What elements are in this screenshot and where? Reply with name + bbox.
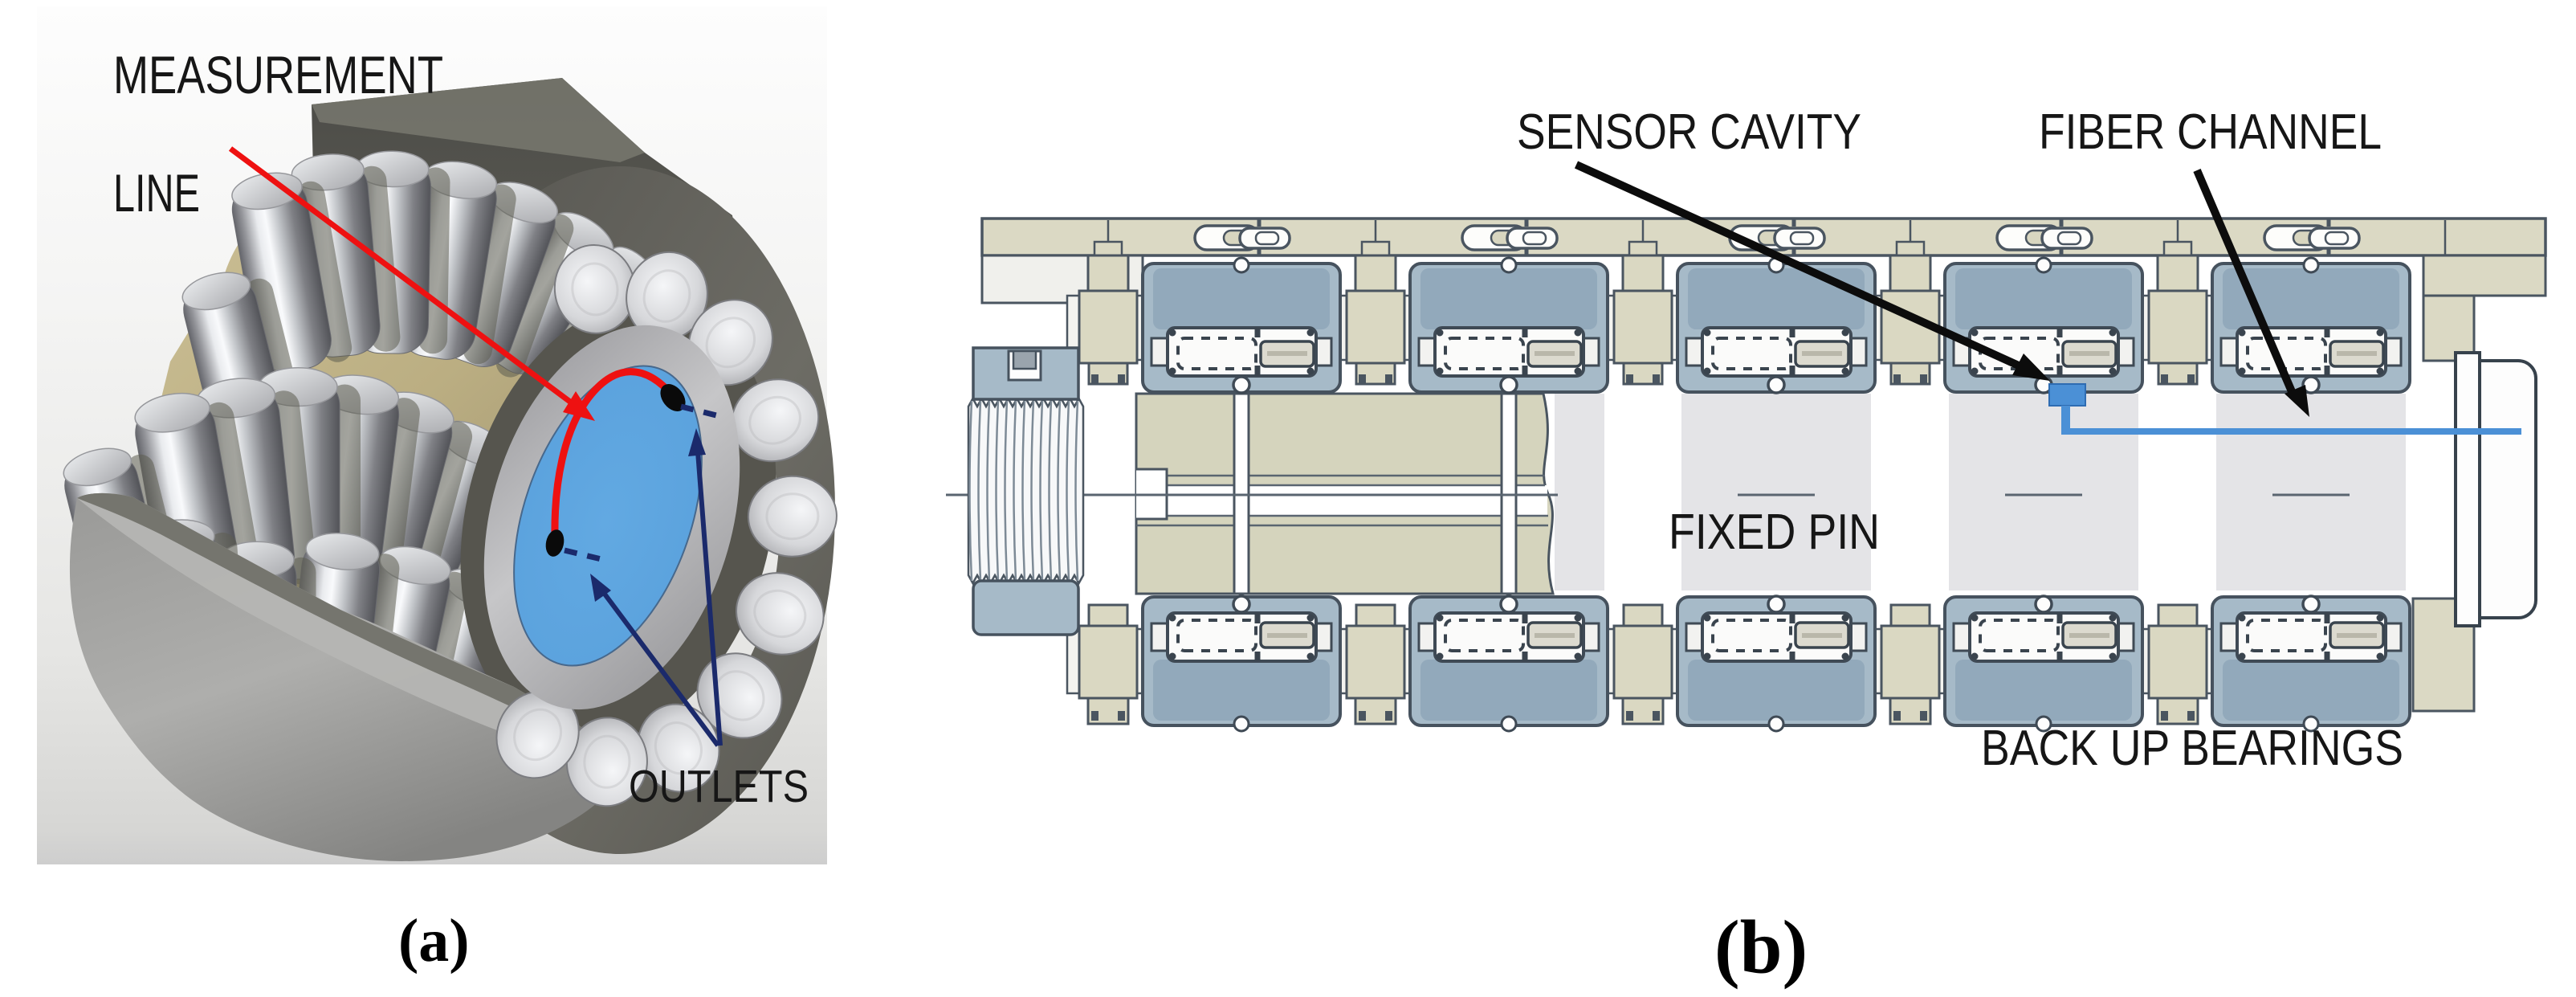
svg-text:FIXED PIN: FIXED PIN xyxy=(1669,505,1880,560)
svg-text:MEASUREMENT: MEASUREMENT xyxy=(113,45,443,104)
svg-text:OUTLETS: OUTLETS xyxy=(629,761,809,812)
svg-text:(a): (a) xyxy=(398,907,470,975)
svg-text:LINE: LINE xyxy=(113,163,200,223)
svg-text:FIBER CHANNEL: FIBER CHANNEL xyxy=(2039,104,2382,160)
svg-text:SENSOR CAVITY: SENSOR CAVITY xyxy=(1517,104,1861,160)
svg-text:(b): (b) xyxy=(1714,905,1808,990)
svg-text:BACK UP BEARINGS: BACK UP BEARINGS xyxy=(1981,721,2403,776)
